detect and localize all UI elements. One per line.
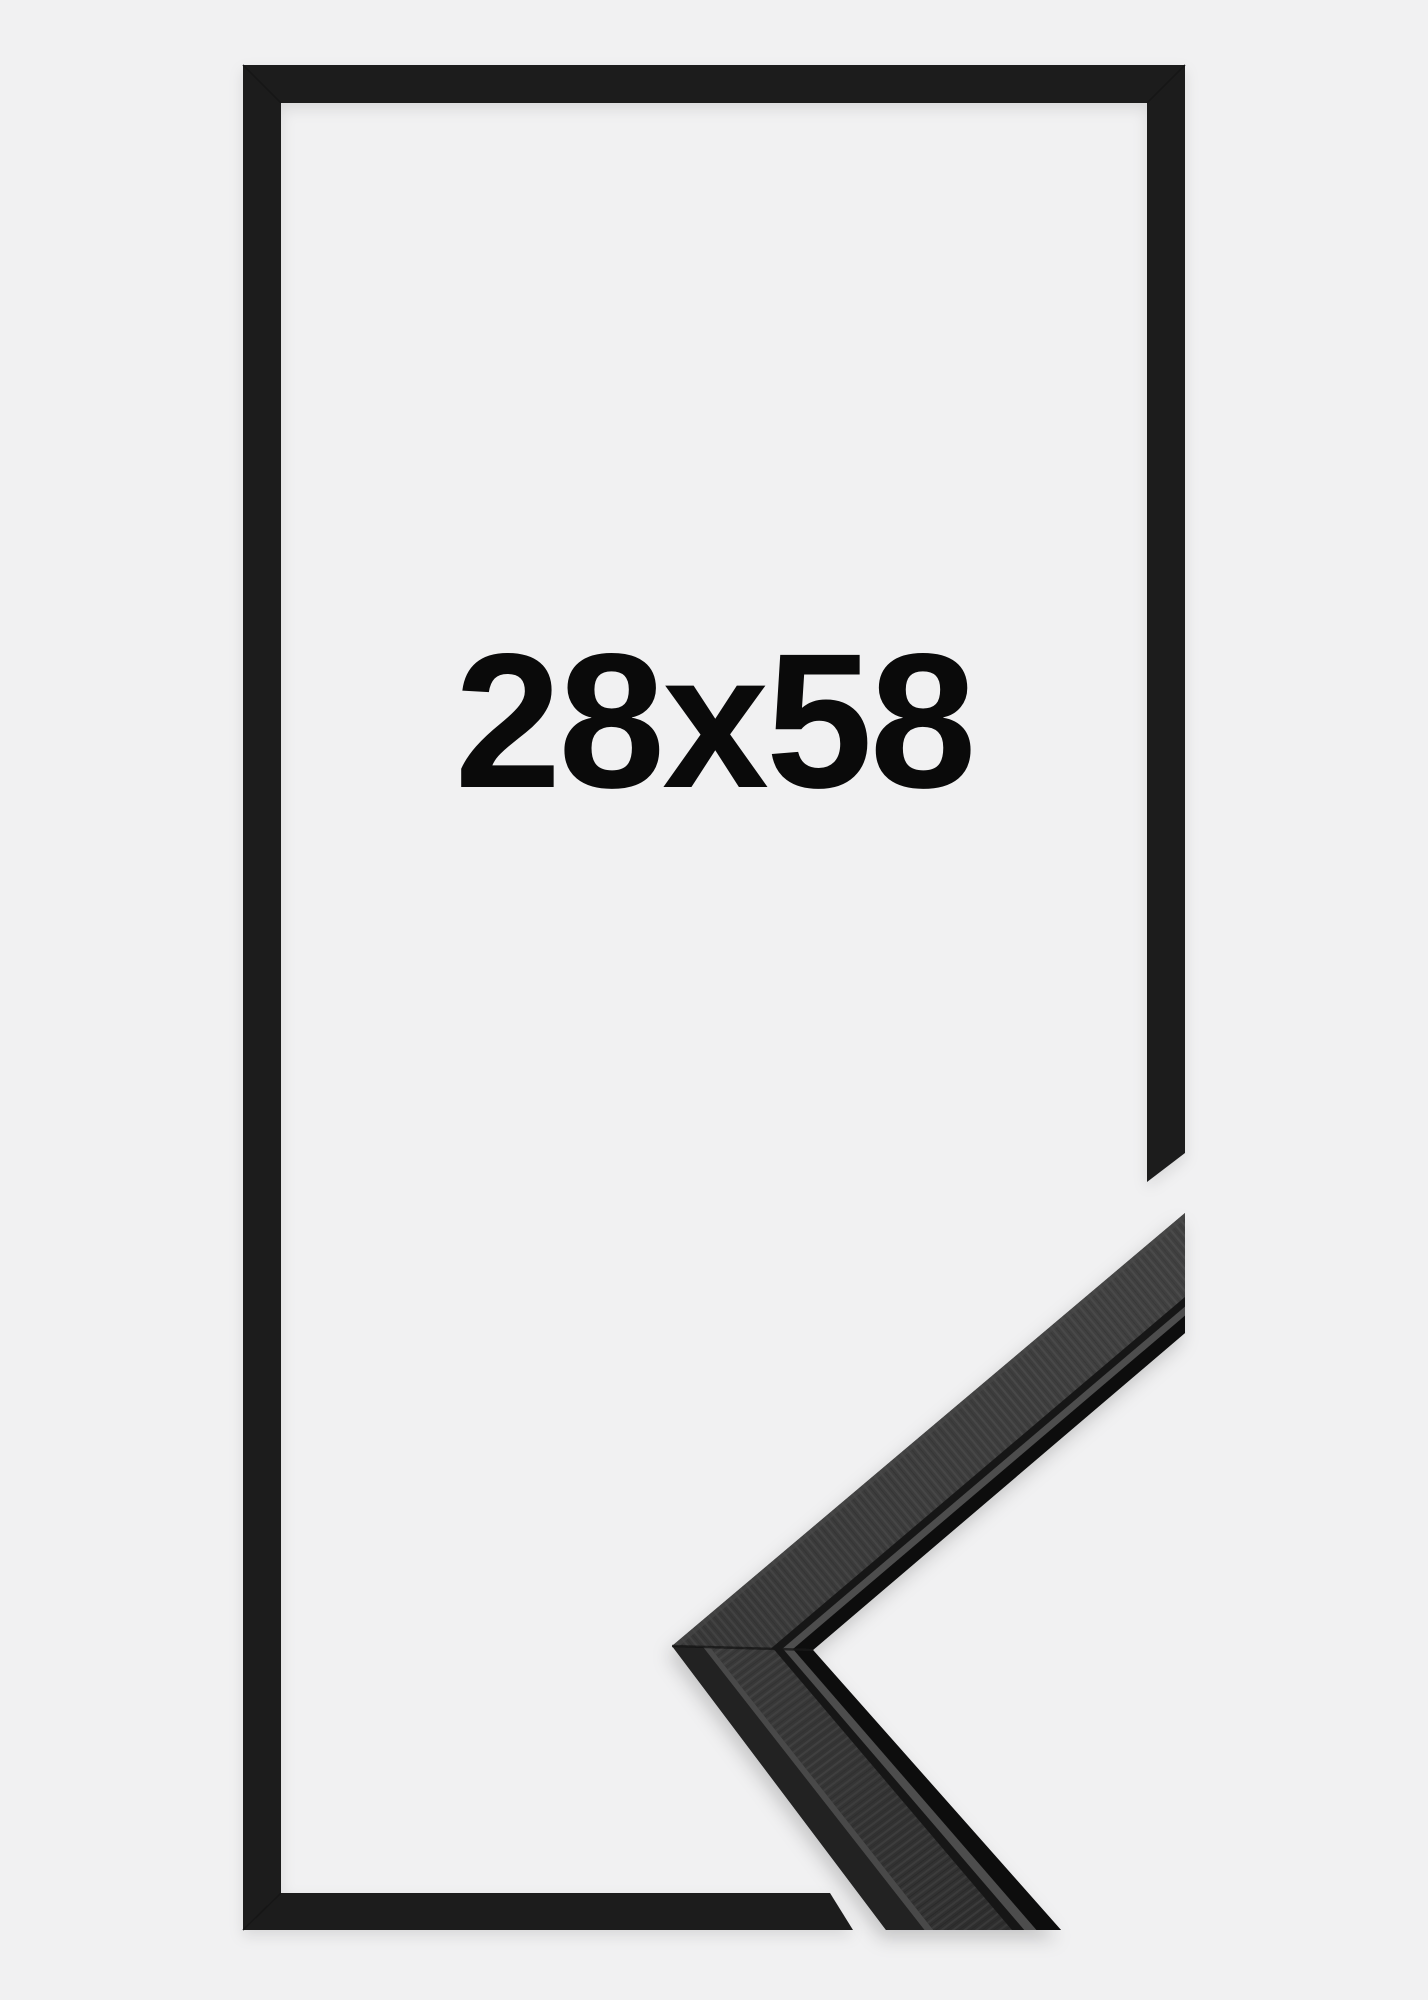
frame-outline-top-bar — [243, 65, 1185, 103]
frame-outline-left-bar — [243, 65, 281, 1930]
sample-upper-arm-outer-highlight — [672, 1213, 1185, 1646]
frame-illustration — [0, 0, 1428, 2000]
frame-outline-bottom-bar — [243, 1893, 853, 1930]
sample-upper-arm-rabbet-lip — [782, 1307, 1185, 1650]
frame-corner-sample — [672, 1213, 1185, 1930]
frame-size-label: 28x58 — [243, 625, 1185, 817]
sample-upper-arm-groove — [771, 1297, 1185, 1649]
frame-outline-right-bar — [1147, 65, 1185, 1182]
product-image: 28x58 — [0, 0, 1428, 2000]
sample-upper-arm-inner-edge — [793, 1316, 1185, 1650]
